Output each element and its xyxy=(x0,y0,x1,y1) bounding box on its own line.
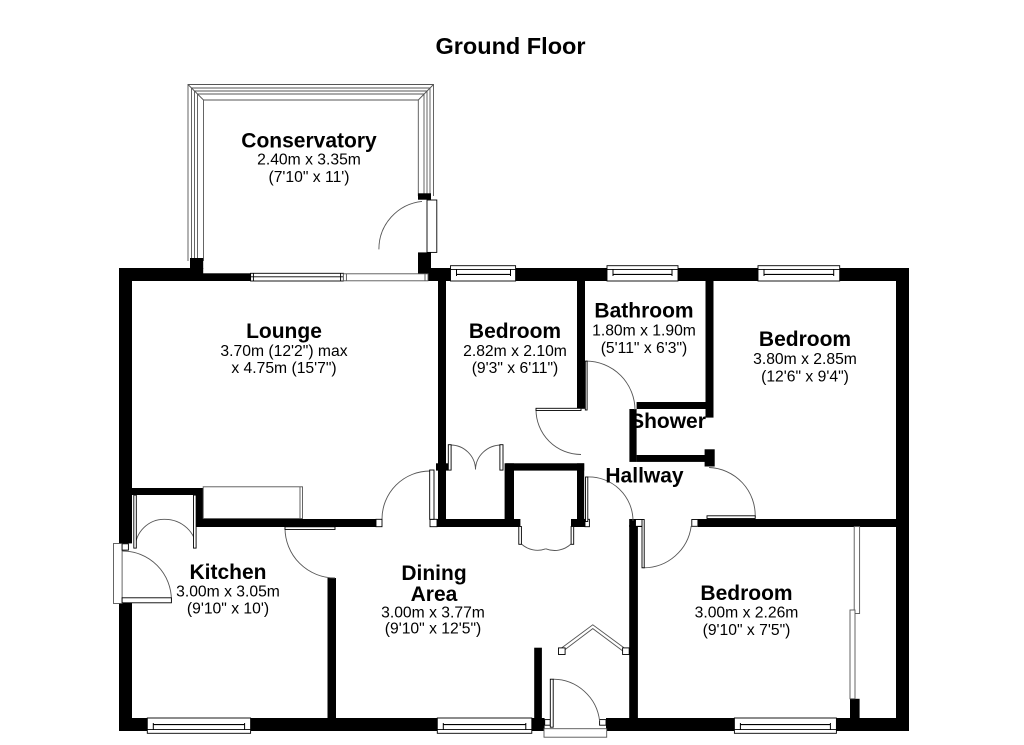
svg-text:3.00m x 3.05m: 3.00m x 3.05m xyxy=(176,584,280,601)
svg-text:Kitchen: Kitchen xyxy=(189,561,266,584)
svg-text:(7'10" x 11'): (7'10" x 11') xyxy=(268,169,349,186)
svg-text:3.80m x 2.85m: 3.80m x 2.85m xyxy=(753,351,857,368)
svg-text:Conservatory: Conservatory xyxy=(241,130,377,153)
svg-text:Area: Area xyxy=(411,583,458,606)
svg-text:Lounge: Lounge xyxy=(246,320,322,343)
svg-text:Bathroom: Bathroom xyxy=(594,300,693,323)
svg-text:x 4.75m (15'7"): x 4.75m (15'7") xyxy=(231,360,336,377)
svg-text:3.00m x 3.77m: 3.00m x 3.77m xyxy=(381,605,485,622)
svg-text:3.70m (12'2") max: 3.70m (12'2") max xyxy=(220,343,347,360)
svg-text:2.82m x 2.10m: 2.82m x 2.10m xyxy=(463,343,567,360)
svg-text:Bedroom: Bedroom xyxy=(759,328,851,351)
svg-text:(9'10" x 12'5"): (9'10" x 12'5") xyxy=(385,621,481,638)
svg-text:(9'3" x 6'11"): (9'3" x 6'11") xyxy=(472,360,559,377)
svg-text:(9'10" x 10'): (9'10" x 10') xyxy=(187,601,269,618)
svg-text:Ground Floor: Ground Floor xyxy=(435,33,585,59)
svg-text:2.40m x 3.35m: 2.40m x 3.35m xyxy=(257,152,361,169)
svg-text:1.80m x 1.90m: 1.80m x 1.90m xyxy=(592,323,696,340)
svg-text:(12'6" x 9'4"): (12'6" x 9'4") xyxy=(761,369,849,386)
svg-text:3.00m x 2.26m: 3.00m x 2.26m xyxy=(695,605,799,622)
svg-text:Hallway: Hallway xyxy=(605,465,684,488)
svg-text:Bedroom: Bedroom xyxy=(469,320,561,343)
svg-text:(5'11" x 6'3"): (5'11" x 6'3") xyxy=(601,340,688,357)
svg-text:Dining: Dining xyxy=(401,562,466,585)
svg-text:Bedroom: Bedroom xyxy=(700,582,792,605)
svg-text:(9'10" x 7'5"): (9'10" x 7'5") xyxy=(703,622,791,639)
svg-text:Shower: Shower xyxy=(630,410,706,433)
